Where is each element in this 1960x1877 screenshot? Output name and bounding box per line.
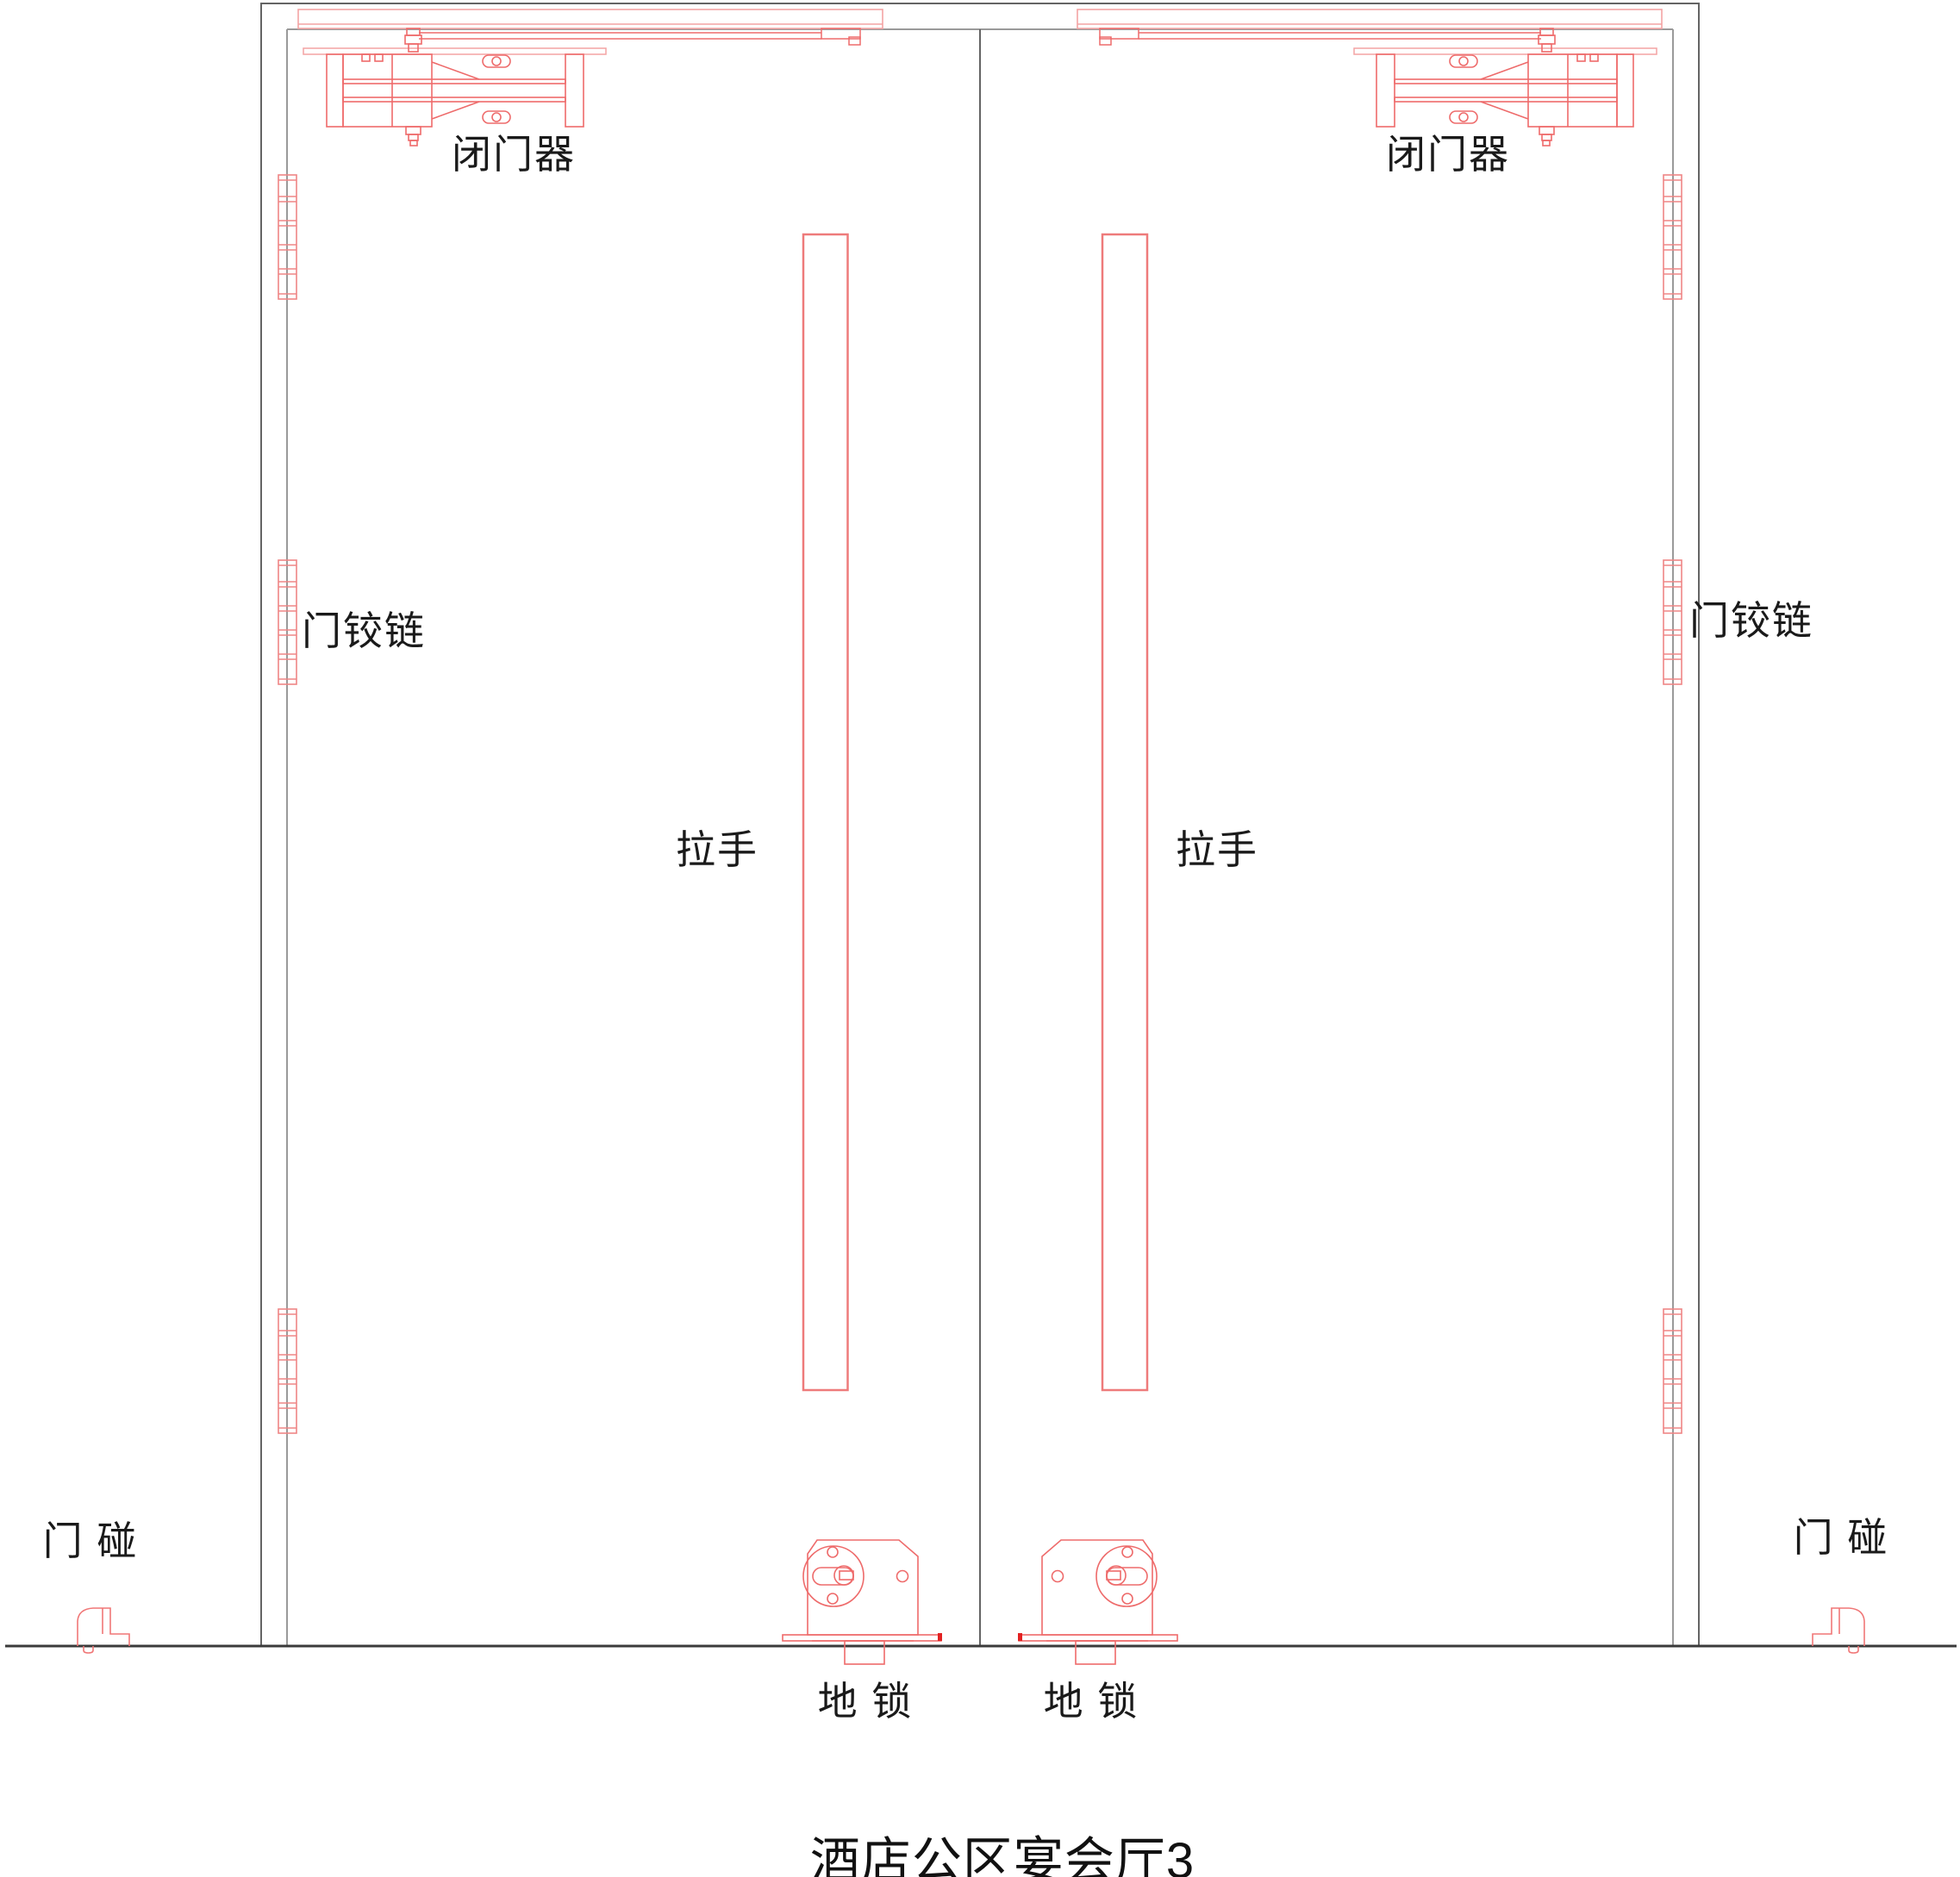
label-handle-right: 拉手: [1176, 829, 1258, 870]
label-door-stop-right: 门 碰: [1794, 1517, 1889, 1558]
handle-bar-left: [803, 234, 848, 1390]
label-door-closer-right: 闭门器: [1386, 134, 1510, 175]
label-handle-left: 拉手: [676, 829, 758, 870]
door-elevation-drawing: 闭门器 闭门器 门铰链 门铰链 拉手 拉手 地 锁 地 锁 门 碰 门 碰 酒店…: [0, 0, 1960, 1877]
label-door-closer-left: 闭门器: [452, 134, 576, 175]
drawing-title: 酒店公区宴会厅3: [810, 1820, 1195, 1877]
label-floor-lock-left: 地 锁: [818, 1681, 914, 1722]
label-door-stop-left: 门 碰: [43, 1520, 139, 1562]
label-hinge-right: 门铰链: [1689, 600, 1813, 641]
handle-bar-right: [1102, 234, 1147, 1390]
label-floor-lock-right: 地 锁: [1044, 1681, 1139, 1722]
cad-linework: [0, 0, 1960, 1877]
label-hinge-left: 门铰链: [302, 610, 426, 652]
